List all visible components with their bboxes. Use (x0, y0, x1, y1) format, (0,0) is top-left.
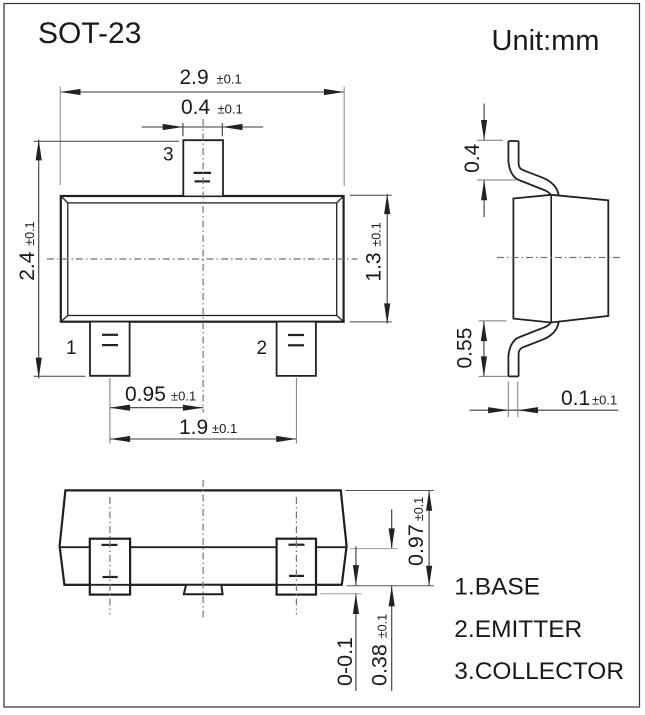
svg-text:0.4: 0.4 (181, 96, 211, 119)
svg-text:2.9: 2.9 (180, 66, 209, 89)
svg-text:0.95: 0.95 (125, 383, 166, 406)
svg-text:0-0.1: 0-0.1 (333, 637, 357, 686)
svg-text:0.55: 0.55 (454, 328, 477, 369)
svg-text:±0.1: ±0.1 (212, 421, 237, 436)
svg-text:1.9: 1.9 (179, 416, 208, 439)
svg-text:3.COLLECTOR: 3.COLLECTOR (454, 658, 624, 685)
svg-text:1: 1 (66, 338, 77, 359)
svg-text:±0.1: ±0.1 (171, 389, 196, 404)
svg-text:±0.1: ±0.1 (592, 393, 617, 408)
svg-text:Unit:mm: Unit:mm (492, 25, 600, 57)
svg-text:1.BASE: 1.BASE (454, 574, 540, 601)
svg-text:0.1: 0.1 (561, 387, 590, 410)
svg-text:2: 2 (257, 338, 268, 359)
svg-text:±0.1: ±0.1 (218, 102, 243, 117)
svg-text:0.4: 0.4 (461, 143, 484, 173)
svg-text:3: 3 (163, 144, 174, 165)
svg-text:±0.1: ±0.1 (217, 72, 242, 87)
svg-text:2.EMITTER: 2.EMITTER (454, 616, 582, 643)
svg-text:SOT-23: SOT-23 (38, 17, 141, 50)
